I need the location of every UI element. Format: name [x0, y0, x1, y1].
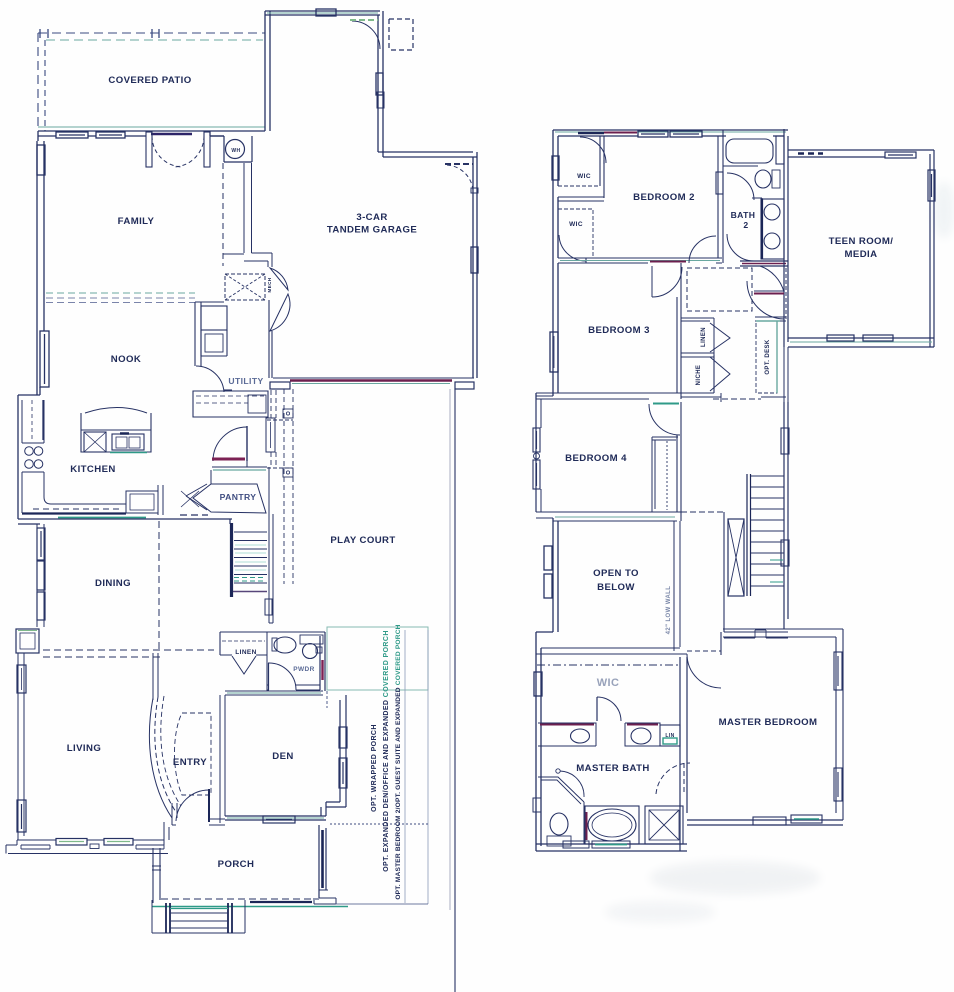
svg-text:BELOW: BELOW [597, 582, 635, 593]
svg-text:TEEN ROOM/: TEEN ROOM/ [829, 236, 894, 247]
svg-text:WIC: WIC [577, 173, 591, 180]
svg-text:COVERED PATIO: COVERED PATIO [108, 75, 191, 86]
svg-text:2: 2 [743, 220, 748, 230]
svg-text:OPT. WRAPPED PORCH: OPT. WRAPPED PORCH [371, 724, 378, 812]
svg-text:PLAY COURT: PLAY COURT [330, 535, 395, 546]
svg-text:PORCH: PORCH [218, 859, 255, 870]
svg-text:OPT. DESK: OPT. DESK [765, 339, 771, 375]
svg-text:LIVING: LIVING [67, 743, 101, 754]
svg-text:NICHE: NICHE [696, 365, 702, 386]
svg-text:DEN: DEN [272, 751, 293, 762]
svg-text:UTILITY: UTILITY [228, 376, 263, 386]
svg-text:MASTER BEDROOM: MASTER BEDROOM [719, 717, 818, 728]
svg-text:OPT. EXPANDED DEN/OFFICE AND E: OPT. EXPANDED DEN/OFFICE AND EXPANDED CO… [383, 630, 390, 872]
svg-text:LINEN: LINEN [701, 327, 707, 347]
svg-text:42" LOW WALL: 42" LOW WALL [666, 586, 672, 635]
svg-text:BEDROOM 2: BEDROOM 2 [633, 192, 695, 203]
svg-text:BEDROOM 4: BEDROOM 4 [565, 453, 627, 464]
svg-text:WIC: WIC [569, 221, 583, 228]
svg-text:KITCHEN: KITCHEN [70, 464, 115, 475]
svg-text:3-CAR: 3-CAR [356, 212, 387, 223]
svg-text:NOOK: NOOK [111, 354, 141, 365]
svg-text:TANDEM GARAGE: TANDEM GARAGE [327, 225, 417, 236]
svg-text:WIC: WIC [597, 677, 620, 689]
svg-text:OPEN TO: OPEN TO [593, 568, 639, 579]
svg-text:BATH: BATH [731, 210, 756, 220]
svg-text:ENTRY: ENTRY [173, 757, 207, 768]
svg-text:LINEN: LINEN [235, 649, 257, 656]
svg-text:DINING: DINING [95, 578, 131, 589]
svg-text:BEDROOM 3: BEDROOM 3 [588, 325, 650, 336]
svg-text:PWDR: PWDR [293, 666, 314, 673]
svg-text:FAMILY: FAMILY [118, 216, 155, 227]
svg-text:OPT. MASTER BEDROOM 2/OPT. GUE: OPT. MASTER BEDROOM 2/OPT. GUEST SUITE A… [395, 624, 402, 899]
svg-text:LIN: LIN [665, 733, 674, 739]
svg-text:MECH: MECH [267, 278, 272, 293]
svg-text:MASTER BATH: MASTER BATH [576, 763, 650, 774]
svg-text:WH: WH [231, 148, 240, 154]
svg-text:PANTRY: PANTRY [220, 492, 257, 502]
svg-text:MEDIA: MEDIA [845, 249, 878, 260]
